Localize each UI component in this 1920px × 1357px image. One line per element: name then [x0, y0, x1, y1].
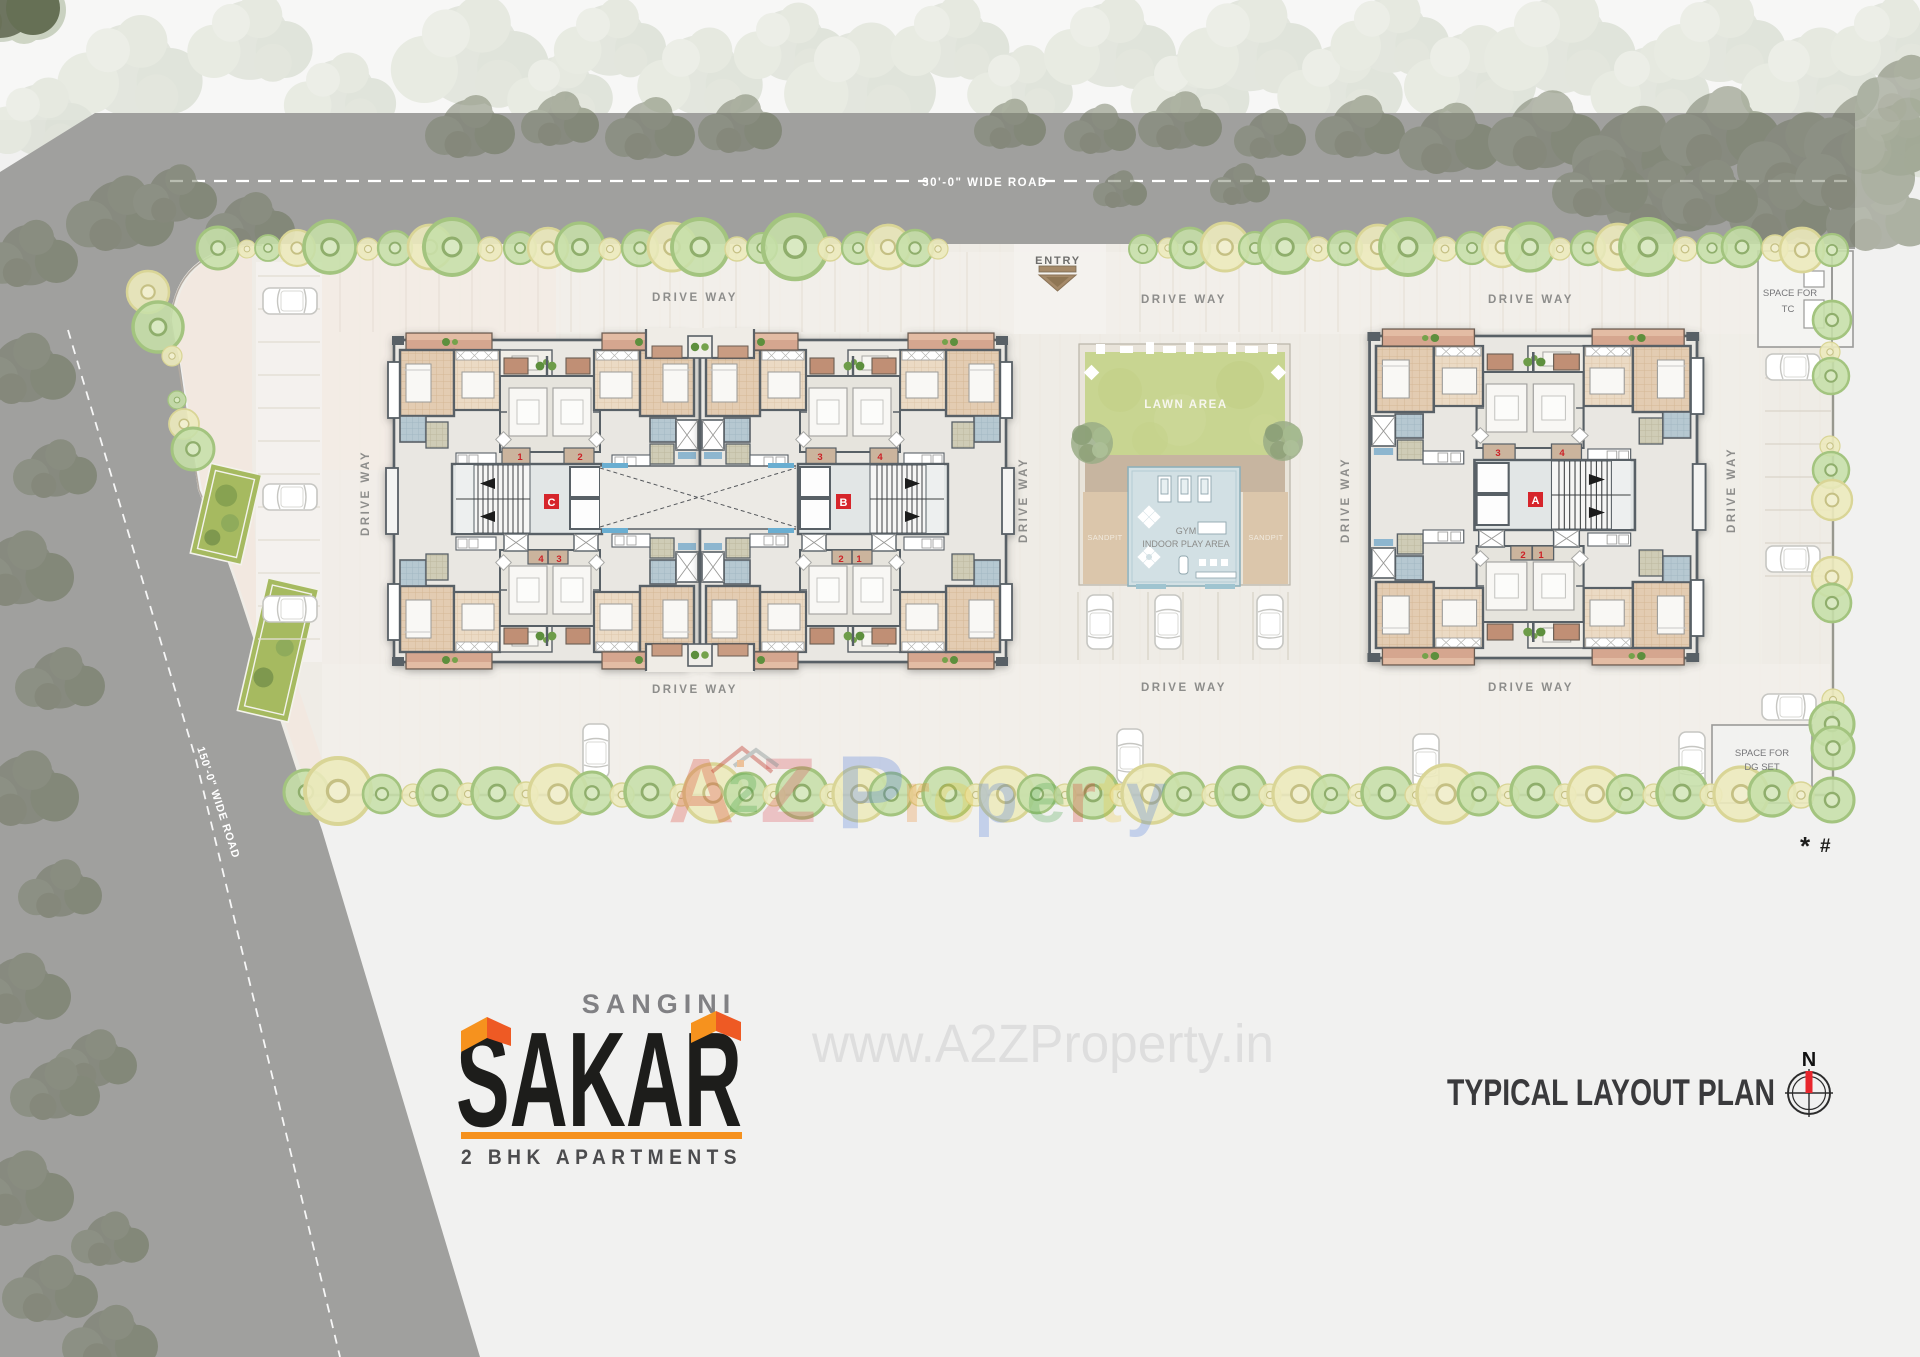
svg-text:3: 3: [556, 554, 561, 565]
svg-text:r: r: [1068, 758, 1096, 838]
svg-text:1: 1: [1538, 550, 1544, 561]
svg-text:e: e: [1026, 758, 1066, 838]
svg-text:SPACE FOR: SPACE FOR: [1763, 288, 1817, 299]
svg-text:C: C: [548, 497, 556, 509]
svg-text:DRIVE WAY: DRIVE WAY: [360, 450, 372, 536]
svg-text:DRIVE WAY: DRIVE WAY: [1141, 294, 1227, 306]
svg-text:P: P: [836, 735, 905, 851]
svg-text:N: N: [1802, 1049, 1816, 1071]
svg-text:A: A: [1532, 495, 1540, 507]
svg-text:3: 3: [817, 452, 822, 463]
svg-text:2: 2: [838, 554, 843, 565]
svg-text:INDOOR PLAY AREA: INDOOR PLAY AREA: [1142, 539, 1229, 549]
svg-text:DRIVE WAY: DRIVE WAY: [1488, 682, 1574, 694]
svg-text:r: r: [902, 758, 930, 838]
svg-text:DRIVE WAY: DRIVE WAY: [1340, 457, 1352, 543]
svg-text:30'-0" WIDE ROAD: 30'-0" WIDE ROAD: [922, 177, 1047, 189]
svg-text:TC: TC: [1782, 304, 1795, 315]
svg-text:#: #: [1820, 836, 1831, 857]
svg-text:2 BHK APARTMENTS: 2 BHK APARTMENTS: [461, 1146, 742, 1169]
svg-text:GYM: GYM: [1176, 526, 1197, 536]
svg-text:DRIVE WAY: DRIVE WAY: [652, 684, 738, 696]
svg-text:2: 2: [577, 452, 582, 463]
svg-text:*: *: [1800, 831, 1811, 861]
svg-text:SPACE FOR: SPACE FOR: [1735, 748, 1789, 759]
svg-text:4: 4: [877, 452, 883, 463]
svg-text:LAWN AREA: LAWN AREA: [1144, 399, 1228, 411]
svg-text:www.A2ZProperty.in: www.A2ZProperty.in: [811, 1014, 1274, 1074]
svg-text:y: y: [1126, 758, 1166, 838]
svg-text:p: p: [974, 758, 1018, 838]
svg-text:2: 2: [728, 761, 759, 824]
svg-text:B: B: [840, 497, 848, 509]
svg-text:4: 4: [538, 554, 544, 565]
svg-text:SANDPIT: SANDPIT: [1248, 533, 1283, 542]
svg-text:DRIVE WAY: DRIVE WAY: [652, 292, 738, 304]
svg-text:SANDPIT: SANDPIT: [1087, 533, 1122, 542]
svg-text:1: 1: [517, 452, 523, 463]
svg-text:2: 2: [1520, 550, 1525, 561]
svg-text:1: 1: [856, 554, 862, 565]
svg-text:DRIVE WAY: DRIVE WAY: [1726, 447, 1738, 533]
svg-text:4: 4: [1559, 448, 1565, 459]
svg-text:DRIVE WAY: DRIVE WAY: [1018, 457, 1030, 543]
svg-text:o: o: [932, 758, 976, 838]
svg-text:ENTRY: ENTRY: [1035, 255, 1081, 267]
svg-text:DG SET: DG SET: [1744, 762, 1780, 773]
svg-text:t: t: [1098, 758, 1122, 838]
svg-text:TYPICAL LAYOUT PLAN: TYPICAL LAYOUT PLAN: [1447, 1072, 1775, 1113]
svg-text:Z: Z: [760, 740, 816, 842]
svg-text:A: A: [668, 740, 734, 842]
svg-text:DRIVE WAY: DRIVE WAY: [1488, 294, 1574, 306]
svg-text:DRIVE WAY: DRIVE WAY: [1141, 682, 1227, 694]
svg-text:3: 3: [1495, 448, 1500, 459]
